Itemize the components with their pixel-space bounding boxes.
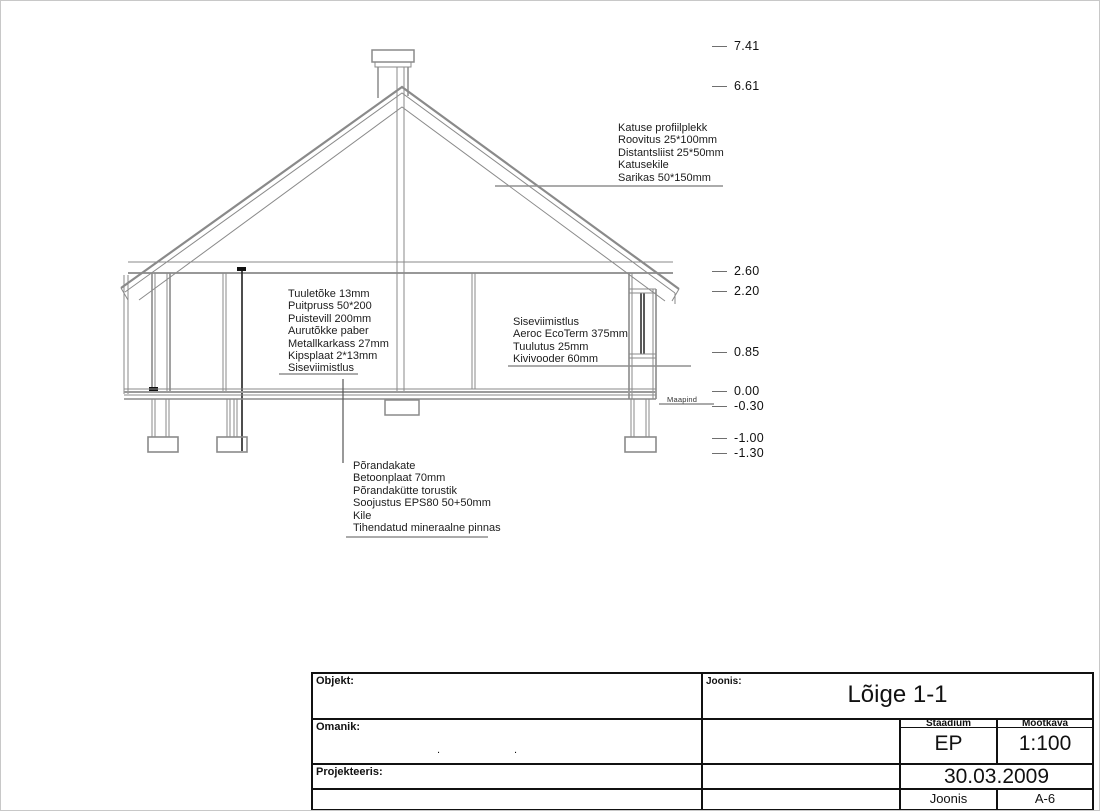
annotation-line: Tihendatud mineraalne pinnas — [353, 522, 501, 534]
elevation-tick-icon — [712, 46, 727, 47]
annotation-line: Aurutõkke paber — [288, 325, 389, 337]
elevation-tick-icon — [712, 453, 727, 454]
elevation-tick-icon — [712, 86, 727, 87]
elevation-tick-icon — [712, 391, 727, 392]
elevation-value: 0.85 — [734, 345, 760, 359]
annotation-line: Aeroc EcoTerm 375mm — [513, 328, 628, 340]
elevation-marker: 2.20 — [712, 283, 760, 299]
elevation-marker: 7.41 — [712, 38, 760, 54]
roof-outline — [121, 87, 679, 304]
elevation-value: 2.20 — [734, 284, 760, 298]
title-block: Objekt: Omanik: . . Projekteeris: Joonis… — [311, 672, 1094, 811]
annotation-line: Kile — [353, 510, 501, 522]
drawing-title: Lõige 1-1 — [703, 681, 1092, 709]
elevation-marker: 2.60 — [712, 263, 760, 279]
joonis-footer-label: Joonis — [901, 791, 996, 806]
annotation-line: Roovitus 25*100mm — [618, 134, 724, 146]
floor-annotation: Põrandakate Betoonplaat 70mm Põrandakütt… — [353, 460, 501, 534]
elevation-marker: 0.00 — [712, 383, 760, 399]
sheet-number: A-6 — [998, 791, 1092, 806]
mootkava-label: Mõõtkava — [998, 718, 1092, 729]
staadium-value: EP — [901, 732, 996, 756]
annotation-line: Põrandakate — [353, 460, 501, 472]
annotation-line: Kivivooder 60mm — [513, 353, 628, 365]
omanik-label: Omanik: — [316, 721, 360, 733]
omanik-punctuation: . — [437, 744, 440, 756]
left-wall-annotation: Tuuletõke 13mm Puitpruss 50*200 Puistevi… — [288, 288, 389, 375]
elevation-marker: -1.30 — [712, 445, 764, 461]
left-wall — [124, 273, 170, 394]
drawing-sheet: Katuse profiilplekk Roovitus 25*100mm Di… — [0, 0, 1100, 811]
objekt-label: Objekt: — [316, 675, 354, 687]
annotation-line: Puitpruss 50*200 — [288, 300, 389, 312]
annotation-line: Sarikas 50*150mm — [618, 172, 724, 184]
staadium-label: Staadium — [901, 718, 996, 729]
annotation-line: Põrandakütte torustik — [353, 485, 501, 497]
annotation-line: Katusekile — [618, 159, 724, 171]
elevation-tick-icon — [712, 352, 727, 353]
title-block-border — [311, 672, 313, 811]
elevation-value: -1.00 — [734, 431, 764, 445]
elevation-value: -1.30 — [734, 446, 764, 460]
annotation-line: Soojustus EPS80 50+50mm — [353, 497, 501, 509]
annotation-line: Katuse profiilplekk — [618, 122, 724, 134]
roof-annotation: Katuse profiilplekk Roovitus 25*100mm Di… — [618, 122, 724, 184]
projekteeris-label: Projekteeris: — [316, 766, 383, 778]
elevation-tick-icon — [712, 406, 727, 407]
date-value: 30.03.2009 — [901, 765, 1092, 789]
right-wall-annotation: Siseviimistlus Aeroc EcoTerm 375mm Tuulu… — [513, 316, 628, 366]
elevation-marker: -1.00 — [712, 430, 764, 446]
elevation-marker: 6.61 — [712, 78, 760, 94]
ceiling — [128, 262, 673, 273]
annotation-line: Distantsliist 25*50mm — [618, 147, 724, 159]
title-block-border — [1092, 672, 1094, 811]
elevation-value: -0.30 — [734, 399, 764, 413]
elevation-tick-icon — [712, 291, 727, 292]
scale-value: 1:100 — [998, 732, 1092, 756]
elevation-value: 7.41 — [734, 39, 760, 53]
annotation-line: Puistevill 200mm — [288, 313, 389, 325]
annotation-line: Betoonplaat 70mm — [353, 472, 501, 484]
annotation-line: Siseviimistlus — [513, 316, 628, 328]
elevation-marker: -0.30 — [712, 398, 764, 414]
annotation-line: Tuulutus 25mm — [513, 341, 628, 353]
elevation-value: 2.60 — [734, 264, 760, 278]
elevation-value: 0.00 — [734, 384, 760, 398]
annotation-line: Kipsplaat 2*13mm — [288, 350, 389, 362]
floor-slab — [124, 389, 656, 399]
omanik-punctuation: . — [514, 744, 517, 756]
elevation-marker: 0.85 — [712, 344, 760, 360]
elevation-tick-icon — [712, 438, 727, 439]
elevation-tick-icon — [712, 271, 727, 272]
elevation-value: 6.61 — [734, 79, 760, 93]
annotation-line: Tuuletõke 13mm — [288, 288, 389, 300]
annotation-line: Siseviimistlus — [288, 362, 389, 374]
ground-level-label: Maapind — [667, 395, 697, 404]
annotation-line: Metallkarkass 27mm — [288, 338, 389, 350]
